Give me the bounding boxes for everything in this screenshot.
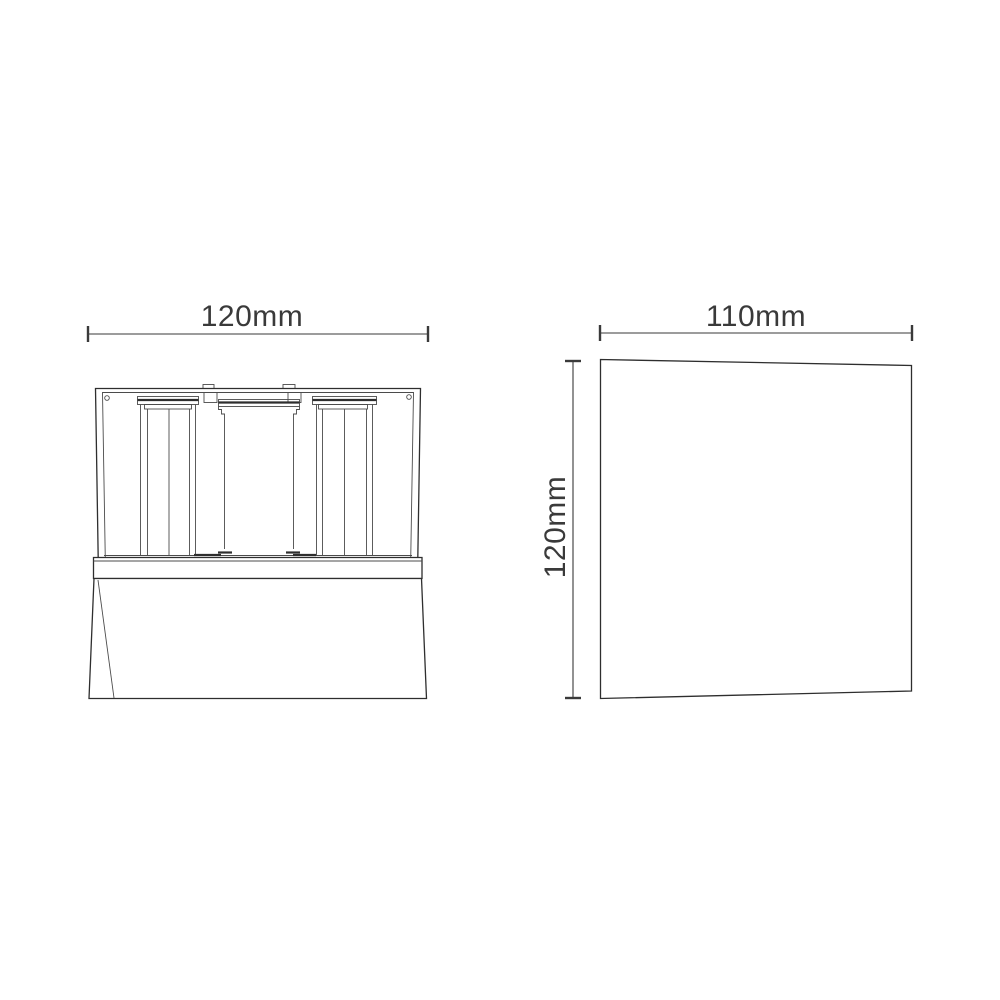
front-width-label: 120mm — [201, 300, 304, 333]
side-height-dimension: 120mm — [539, 361, 581, 698]
front-outer-frame — [96, 389, 421, 578]
side-width-dimension: 110mm — [600, 300, 912, 341]
lower-body-outline — [89, 579, 427, 699]
lower-body — [89, 579, 427, 699]
collar-band — [94, 558, 423, 579]
side-body-outline — [601, 360, 912, 699]
front-view-fixture — [89, 385, 427, 699]
side-width-label: 110mm — [706, 300, 806, 333]
front-view: 120mm — [88, 300, 428, 699]
side-view: 110mm 120mm — [539, 300, 912, 699]
front-width-dimension: 120mm — [88, 300, 428, 342]
drawing-canvas: 120mm — [0, 0, 1000, 1000]
side-height-label: 120mm — [539, 476, 572, 579]
technical-drawing: 120mm — [0, 0, 1000, 1000]
